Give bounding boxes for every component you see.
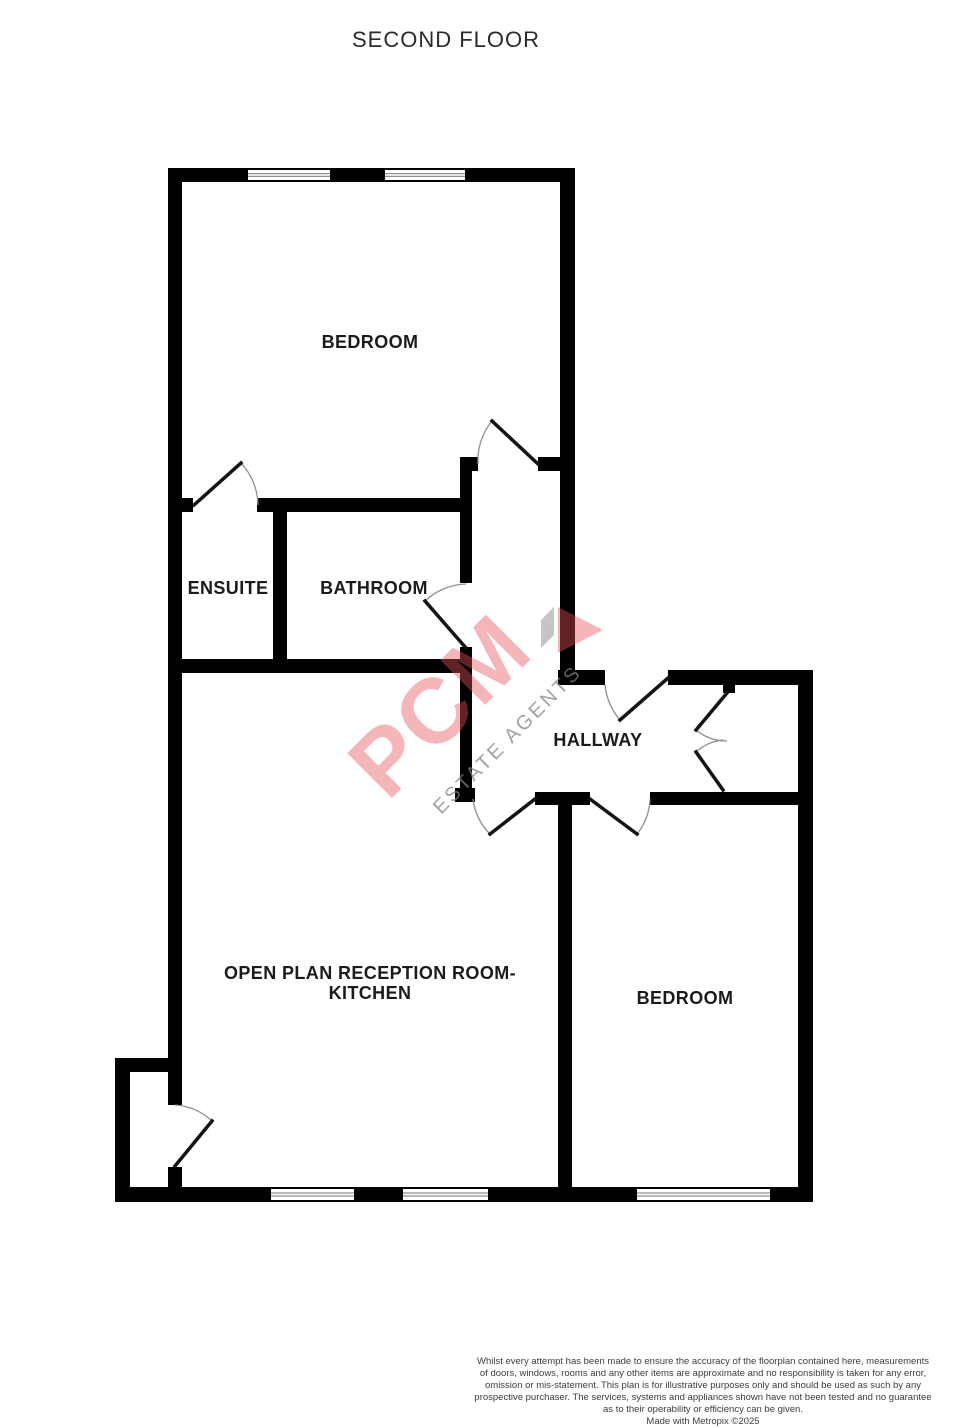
wall — [798, 670, 813, 1202]
wall — [538, 457, 560, 471]
wall — [770, 1187, 813, 1202]
wall — [723, 683, 735, 693]
hallway-top-door-arc — [605, 685, 620, 720]
bedroom-top-door-arc — [478, 421, 492, 464]
entrance-door-lower-arc — [696, 740, 723, 752]
wall — [558, 792, 572, 1202]
wall — [115, 1058, 130, 1202]
window — [248, 168, 330, 182]
wall — [650, 792, 805, 805]
watermark-arrow — [558, 607, 603, 653]
lobby-door-leaf — [175, 1121, 212, 1166]
entrance-door-lower-leaf — [696, 752, 723, 790]
wall — [460, 457, 478, 471]
wall — [115, 1187, 271, 1202]
lobby-door-arc — [175, 1105, 212, 1121]
ensuite-door-arc — [241, 463, 258, 505]
entrance-door-upper-leaf — [696, 693, 727, 730]
wall — [460, 471, 472, 583]
disclaimer-line: as to their operability or efficiency ca… — [423, 1404, 980, 1416]
reception-door-leaf — [490, 799, 535, 834]
wall — [257, 498, 472, 512]
wall — [273, 512, 287, 660]
disclaimer-line: of doors, windows, rooms and any other i… — [423, 1368, 980, 1380]
watermark-gray-bar — [541, 607, 554, 648]
reception-door-arc — [473, 799, 490, 834]
wall — [168, 168, 182, 1072]
bedroom-top-door-leaf — [492, 421, 538, 464]
wall — [668, 670, 813, 685]
window — [403, 1187, 488, 1202]
watermark-text: PCM — [330, 596, 551, 817]
entrance-door-upper-arc — [696, 730, 727, 741]
window — [385, 168, 465, 182]
floorplan-page: SECOND FLOOR PCMESTATE AGENTS BEDROOMENS… — [0, 0, 980, 1428]
bathroom-door-arc — [425, 584, 466, 601]
wall — [488, 1187, 637, 1202]
wall — [330, 168, 385, 182]
disclaimer: Whilst every attempt has been made to en… — [423, 1356, 980, 1428]
disclaimer-line: Whilst every attempt has been made to en… — [423, 1356, 980, 1368]
disclaimer-line: Made with Metropix ©2025 — [423, 1416, 980, 1428]
bedroom-right-door-arc — [637, 799, 650, 834]
bedroom-right-door-leaf — [590, 799, 637, 834]
wall — [465, 168, 575, 182]
wall — [560, 168, 575, 685]
wall — [168, 498, 193, 512]
ensuite-door-leaf — [194, 463, 241, 505]
hallway-top-door-leaf — [620, 678, 668, 720]
disclaimer-line: prospective purchaser. The services, sys… — [423, 1392, 980, 1404]
wall — [354, 1187, 403, 1202]
disclaimer-line: omission or mis-statement. This plan is … — [423, 1380, 980, 1392]
wall — [168, 1072, 182, 1105]
floorplan-svg: PCMESTATE AGENTS — [0, 0, 980, 1428]
wall — [168, 1167, 182, 1187]
window — [271, 1187, 354, 1202]
window — [637, 1187, 770, 1202]
